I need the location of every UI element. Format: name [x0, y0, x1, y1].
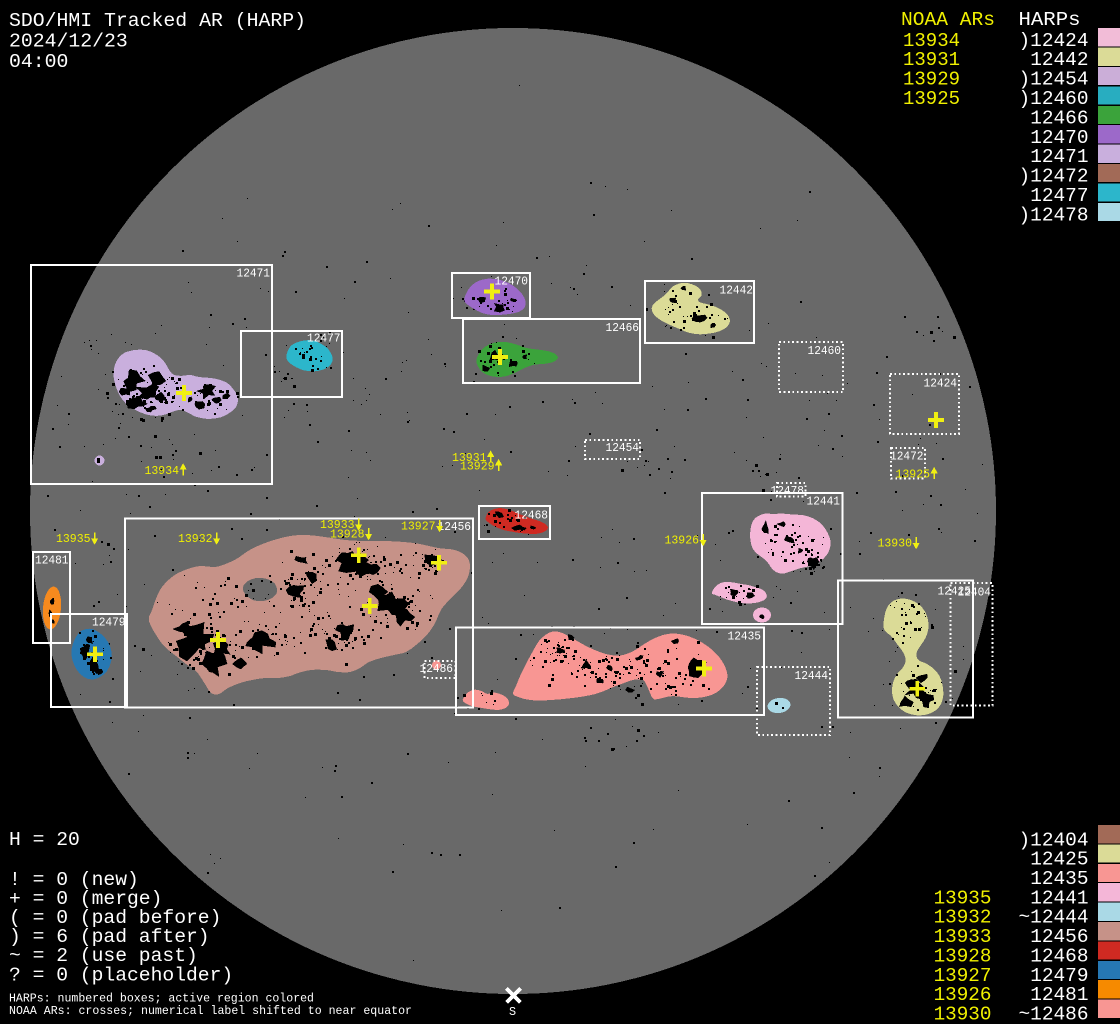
svg-text:NOAA ARs: NOAA ARs	[901, 9, 995, 31]
svg-text:S: S	[509, 1005, 516, 1019]
svg-text:12460: 12460	[808, 344, 842, 358]
svg-text:13928: 13928	[330, 529, 365, 542]
svg-text:12466: 12466	[606, 321, 640, 335]
svg-text:? = 0 (placeholder): ? = 0 (placeholder)	[9, 964, 233, 986]
svg-text:12404: 12404	[958, 586, 992, 600]
svg-text:13929: 13929	[460, 461, 495, 474]
svg-text:12442: 12442	[720, 284, 754, 298]
svg-text:~12486: ~12486	[1019, 1003, 1089, 1024]
svg-text:04:00: 04:00	[9, 51, 68, 73]
svg-text:)12478: )12478	[1019, 204, 1089, 226]
svg-text:13925: 13925	[903, 88, 960, 110]
svg-text:SDO/HMI Tracked AR (HARP): SDO/HMI Tracked AR (HARP)	[9, 10, 306, 32]
svg-text:12435: 12435	[728, 630, 762, 644]
svg-text:13927: 13927	[401, 521, 436, 534]
svg-text:12471: 12471	[237, 267, 271, 281]
svg-text:12441: 12441	[807, 495, 841, 509]
svg-text:12481: 12481	[35, 554, 69, 568]
svg-text:13934: 13934	[145, 465, 180, 478]
svg-text:HARPs: HARPs	[1019, 9, 1081, 31]
svg-text:13925: 13925	[896, 469, 931, 482]
svg-text:13932: 13932	[178, 533, 213, 546]
svg-text:12478: 12478	[771, 484, 805, 498]
svg-text:NOAA ARs: crosses; numerical l: NOAA ARs: crosses; numerical label shift…	[9, 1004, 412, 1018]
svg-text:13926: 13926	[665, 535, 700, 548]
svg-text:13935: 13935	[56, 533, 91, 546]
svg-text:12479: 12479	[92, 616, 126, 630]
svg-text:12468: 12468	[515, 509, 549, 523]
svg-text:12454: 12454	[606, 441, 640, 455]
svg-text:2024/12/23: 2024/12/23	[9, 31, 128, 53]
svg-text:12477: 12477	[307, 332, 341, 346]
svg-text:12472: 12472	[890, 450, 924, 464]
svg-text:13930: 13930	[878, 538, 913, 551]
svg-text:H = 20: H = 20	[9, 829, 80, 851]
svg-text:12424: 12424	[924, 377, 958, 391]
svg-text:12444: 12444	[795, 669, 829, 683]
svg-text:13930: 13930	[934, 1003, 992, 1024]
svg-text:12470: 12470	[495, 275, 529, 289]
svg-text:12486: 12486	[420, 662, 454, 676]
